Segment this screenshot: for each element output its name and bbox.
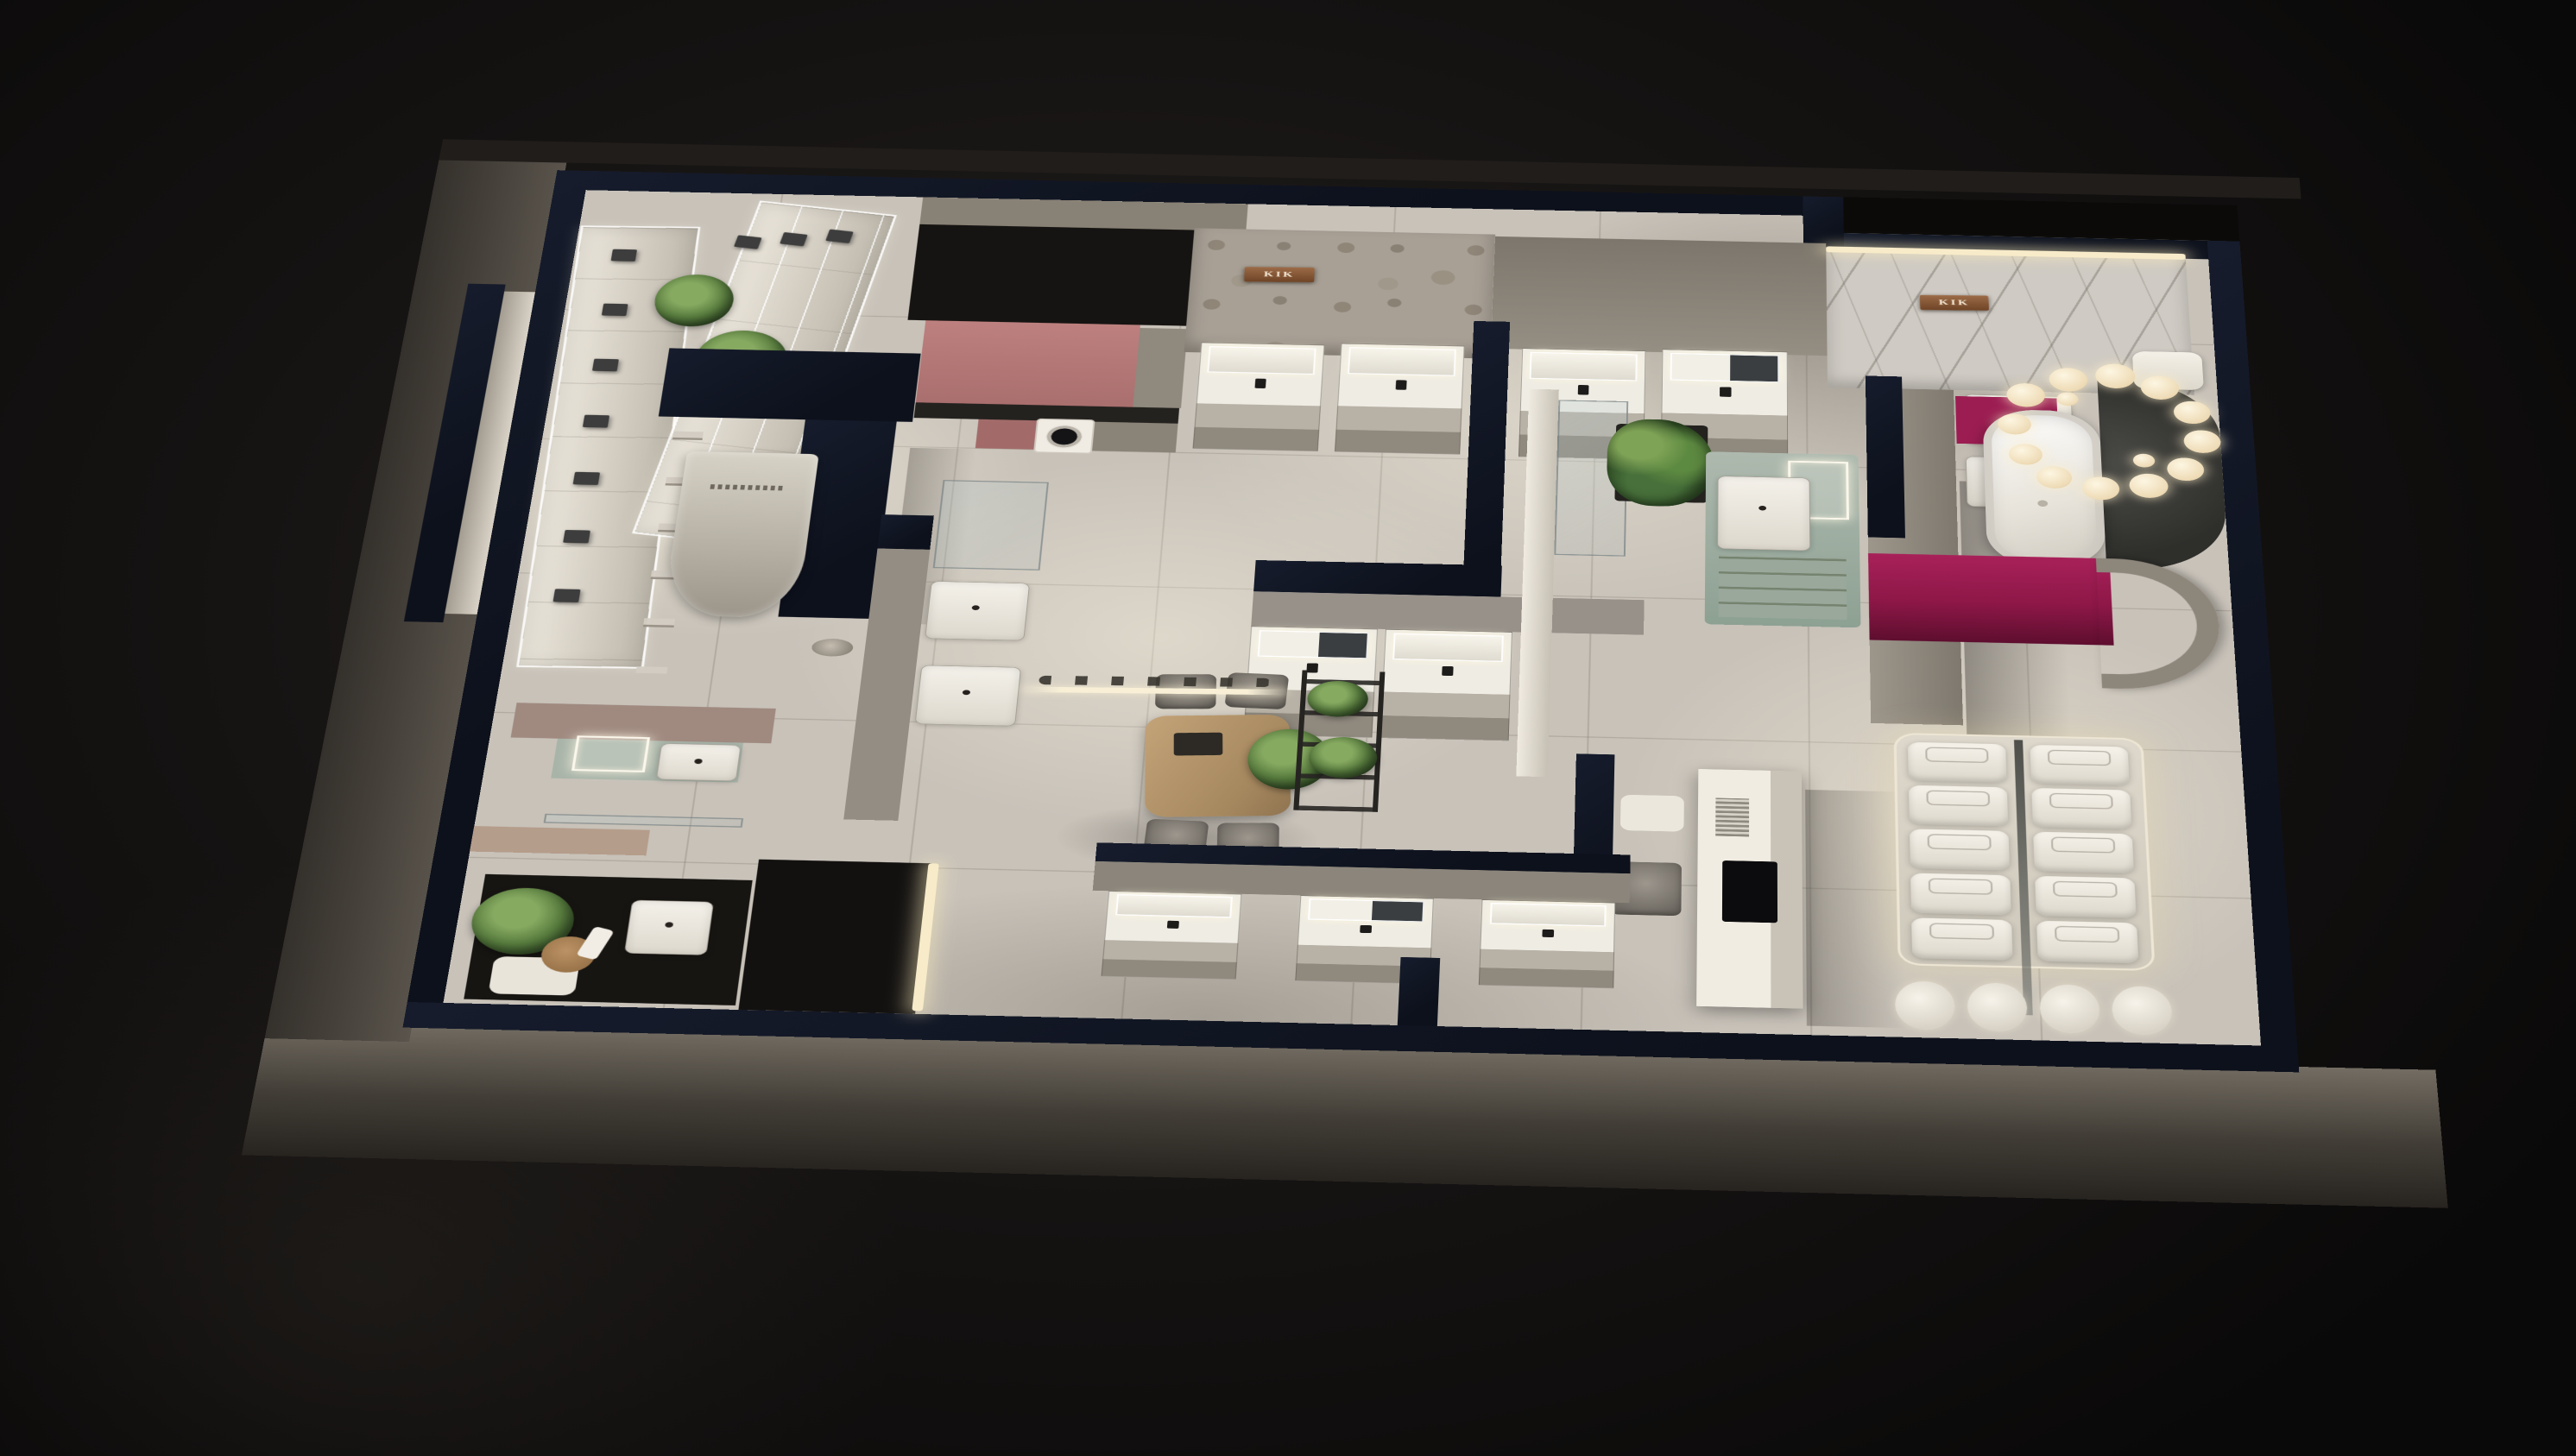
stone-feature-wall — [1184, 228, 1496, 358]
toilet-3 — [1910, 829, 2010, 870]
washing-machine — [1033, 419, 1095, 454]
mockup2-basin — [624, 900, 714, 955]
vanity-display-2 — [1335, 344, 1465, 455]
white-stool — [1620, 795, 1684, 832]
vanity-display-1 — [1193, 343, 1325, 451]
reception-wall-l-horizontal — [659, 348, 921, 421]
corner-warm-wall — [470, 826, 650, 855]
shower-display-a5 — [573, 472, 601, 485]
shower-display-a3 — [592, 359, 619, 372]
partition-midleft-cap — [877, 514, 933, 550]
divider-wall-cap — [1866, 375, 1905, 538]
laundry-wall-pink — [916, 320, 1140, 407]
partition-island-cap — [1253, 560, 1502, 597]
toilet-1 — [1908, 742, 2007, 783]
toilet-4 — [1910, 873, 2011, 916]
shower-display-a1 — [611, 249, 637, 262]
showroom-floorplan: KIKKIK — [368, 170, 2314, 1270]
vanity-south-island-2 — [1380, 629, 1512, 741]
toilet-2 — [1909, 785, 2008, 827]
shower-display-a2 — [602, 304, 628, 316]
kiosk-screen — [1722, 860, 1777, 923]
table-tray — [1174, 733, 1223, 756]
sage-shelf — [1719, 554, 1847, 620]
shower-display-a4 — [583, 415, 609, 428]
void-room-dark — [738, 860, 931, 1014]
brand-sign-left: KIK — [1244, 267, 1315, 282]
basin-midleft-2 — [914, 665, 1021, 727]
wallface-north-center — [1491, 236, 1828, 356]
shower-display-b2 — [780, 232, 808, 246]
toilet-10 — [2036, 921, 2138, 964]
bubble-pendant-13 — [2056, 392, 2079, 406]
basin-midleft-1 — [925, 581, 1030, 640]
shower-display-b1 — [734, 235, 762, 249]
tub-front-magenta-cabinet — [1868, 553, 2114, 646]
shadow-kiosk — [1805, 790, 1906, 1028]
laundry-cabinet-taupe — [1092, 422, 1178, 453]
mockup1-basin — [656, 743, 742, 781]
toilet-8 — [2033, 832, 2134, 873]
sage-basin — [1717, 476, 1810, 551]
shower-display-a7 — [552, 589, 580, 602]
vanity-south-3 — [1479, 899, 1615, 988]
laundry-wall-taupe — [1133, 328, 1187, 408]
vanity-south-1 — [1101, 891, 1241, 980]
brand-sign-right: KIK — [1920, 295, 1990, 311]
kiosk-vent — [1715, 798, 1749, 837]
toilet-9 — [2035, 876, 2137, 918]
render-canvas: KIKKIK — [0, 0, 2576, 1456]
laundry-cabinet-mauve — [975, 419, 1037, 450]
shower-display-a6 — [563, 530, 590, 543]
toilet-5 — [1911, 917, 2013, 961]
shower-display-b3 — [825, 230, 853, 243]
wall-stub — [1398, 957, 1440, 1026]
shower-glass-enclosure — [933, 480, 1049, 570]
toilet-7 — [2031, 788, 2131, 829]
mockup1-led-mirror — [571, 735, 650, 772]
toilet-6 — [2030, 745, 2130, 785]
